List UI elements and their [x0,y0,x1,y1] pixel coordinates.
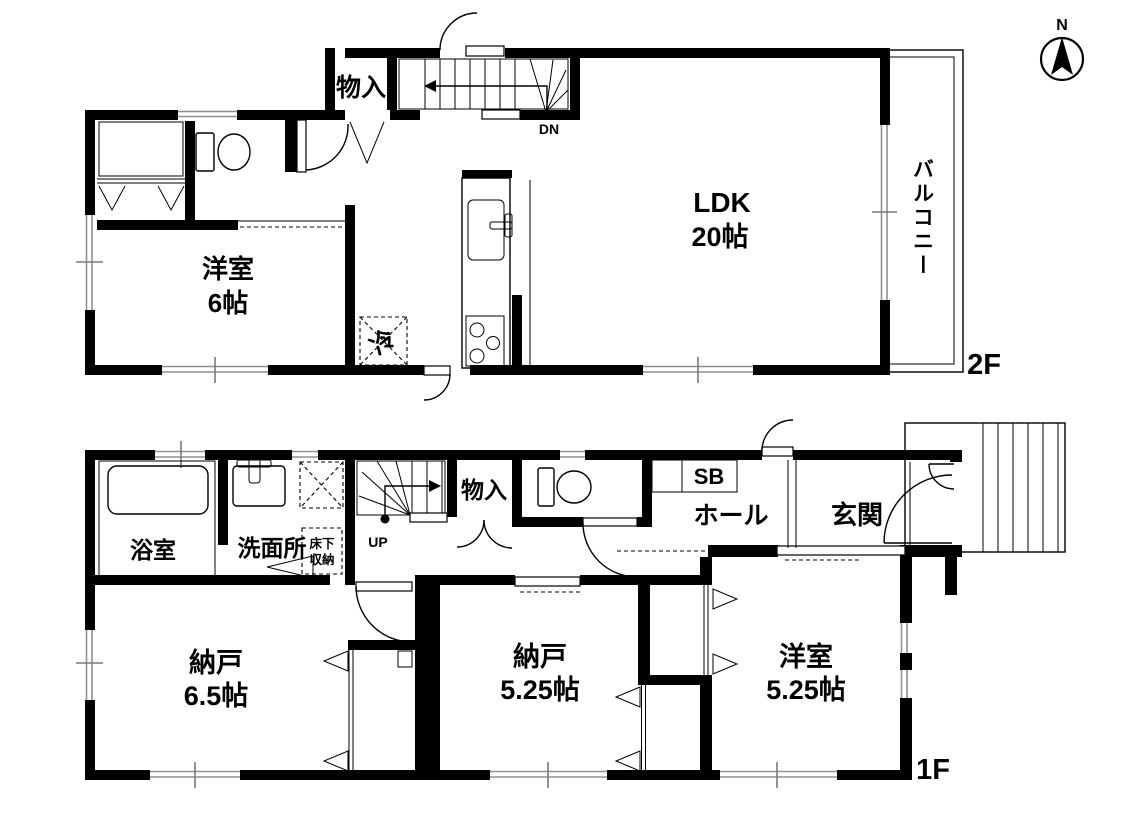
washbasin-icon [233,455,285,506]
closet-western-room-1f [704,585,737,675]
storage-double-door-1f [457,520,512,548]
floor-1-label: 1F [916,754,950,786]
door-toilet-2f [297,120,348,172]
balcony-label: バルコニー [911,158,935,278]
stairs-1f: UP [357,461,447,550]
stairs-2f: DN [399,59,568,137]
stair-start-dot-1f [381,515,390,524]
sliding-door-bedroom-2f [238,220,345,230]
stair-arrow-2f [424,80,436,92]
window [643,357,753,383]
door-hall-back [762,420,793,456]
western-room-1f-size: 5.25帖 [766,675,846,705]
window [490,762,607,788]
underfloor-storage-label-1: 床下 [309,536,335,551]
sliding-door-storage-room-2 [515,577,582,592]
floor-2-label: 2F [967,349,1001,381]
window [76,630,103,700]
storage-room-1-size: 6.5帖 [184,681,249,711]
underfloor-storage-label-2: 収納 [309,552,334,567]
entrance-porch-steps [905,423,1065,552]
window [162,357,268,383]
shoe-box: SB [652,460,737,492]
door-toilet-1f [583,518,637,577]
storage-room-2-name: 納戸 [513,641,567,672]
door-top-exterior [440,13,504,56]
window [150,762,240,788]
balcony-sliding-window [872,125,897,300]
storage-room-2-size: 5.25帖 [500,675,580,705]
stove-icon [466,316,504,366]
door-storage-room-1 [356,582,412,642]
storage-1f-label: 物入 [461,477,507,503]
stair-start-dot-2f [543,111,551,119]
window [898,623,912,653]
underfloor-storage: 床下 収納 [302,528,342,574]
entrance-double-door [884,464,954,543]
toilet-fixture-1f [538,468,591,506]
storage-room-1-name: 納戸 [189,647,243,678]
floor-plan-drawing: DN 冷 物入 LDK 2 [0,0,1125,825]
bathroom-label: 浴室 [130,537,176,563]
closet-2f [97,122,185,210]
folding-door-storage-2f [350,122,384,163]
stairs-down-label: DN [539,121,559,137]
western-room-2f-name: 洋室 [202,254,254,284]
floor-2-walls [85,48,890,375]
bathtub-icon [108,466,208,514]
window [292,448,318,461]
floor-plan-page: DN 冷 物入 LDK 2 [0,0,1125,825]
window [720,762,837,788]
floor-2-plan: DN 冷 物入 LDK 2 [76,13,1001,400]
window [898,670,912,698]
stair-arrow-1f [429,480,441,492]
window [560,448,585,461]
kitchen-sink-icon [468,200,512,260]
window [155,441,205,468]
door-bottom-exterior [424,366,450,400]
washroom-label: 洗面所 [238,535,307,561]
north-arrow-icon [1051,37,1073,75]
window [178,108,237,121]
ldk-name: LDK [693,187,751,218]
storage-2f-label: 物入 [336,74,386,102]
shoe-box-label: SB [694,464,725,489]
ldk-size: 20帖 [691,222,748,252]
western-room-2f-size: 6帖 [208,288,248,318]
refrigerator-space: 冷 [360,317,407,365]
compass: N [1041,17,1083,80]
hall-label: ホール [693,502,768,530]
stairs-up-label: UP [368,534,387,550]
compass-north-label: N [1056,17,1068,34]
closet-storage-room-2 [616,685,646,771]
washing-machine-space [300,462,343,508]
western-room-1f-name: 洋室 [779,641,833,672]
entrance-label: 玄関 [831,500,883,530]
closet-storage-room-1 [324,650,412,772]
floor-1-plan: 床下 収納 UP SB [76,420,1065,788]
toilet-fixture-2f [196,133,250,171]
